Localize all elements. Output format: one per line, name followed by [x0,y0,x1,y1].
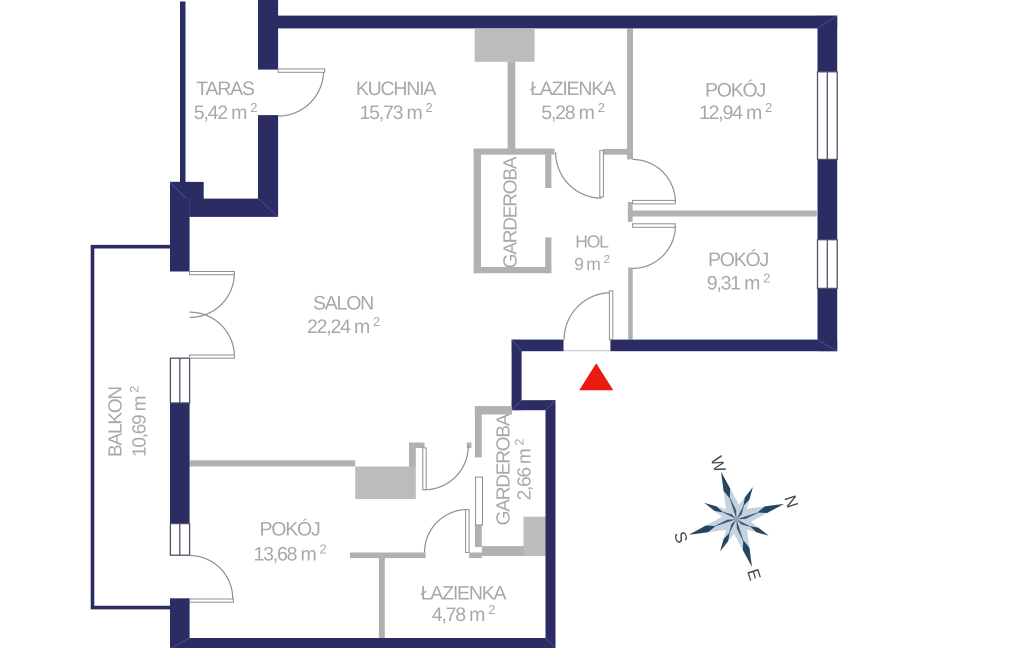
svg-text:5,28 m2: 5,28 m2 [541,100,604,124]
svg-text:SALON: SALON [313,293,373,315]
svg-text:S: S [670,529,691,545]
svg-text:9 m2: 9 m2 [574,253,610,274]
svg-text:TARAS: TARAS [196,78,255,100]
svg-text:13,68 m2: 13,68 m2 [253,542,326,566]
svg-text:GARDEROBA: GARDEROBA [494,413,515,525]
svg-text:5,42 m2: 5,42 m2 [194,100,257,124]
svg-text:POKÓJ: POKÓJ [705,80,766,102]
svg-text:2,66 m2: 2,66 m2 [513,438,536,500]
svg-text:HOL: HOL [575,232,609,252]
svg-text:POKÓJ: POKÓJ [259,519,320,541]
svg-text:E: E [743,567,764,583]
svg-text:BALKON: BALKON [106,387,127,457]
svg-text:POKÓJ: POKÓJ [708,249,769,271]
svg-text:22,24 m2: 22,24 m2 [307,314,380,338]
svg-text:15,73 m2: 15,73 m2 [359,100,432,124]
svg-text:4,78 m2: 4,78 m2 [432,602,495,626]
svg-text:GARDEROBA: GARDEROBA [500,156,521,268]
svg-text:KUCHNIA: KUCHNIA [356,78,437,100]
svg-text:W: W [707,454,729,475]
svg-text:ŁAZIENKA: ŁAZIENKA [530,78,616,100]
svg-text:N: N [780,493,801,510]
svg-text:10,69 m2: 10,69 m2 [128,386,151,457]
svg-text:12,94 m2: 12,94 m2 [699,100,772,124]
svg-text:9,31 m2: 9,31 m2 [707,271,770,295]
